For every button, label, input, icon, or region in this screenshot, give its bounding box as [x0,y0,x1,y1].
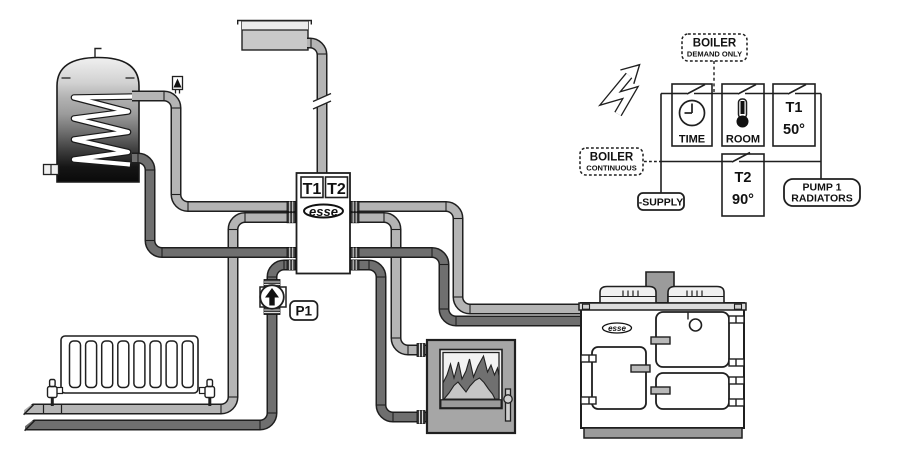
svg-text:T2: T2 [327,181,346,198]
svg-text:DEMAND ONLY: DEMAND ONLY [687,50,742,59]
svg-text:CONTINUOUS: CONTINUOUS [586,164,636,173]
svg-text:TIME: TIME [679,134,705,146]
svg-text:RADIATORS: RADIATORS [791,193,852,205]
svg-text:90°: 90° [732,192,754,208]
svg-text:50°: 50° [783,122,805,138]
svg-text:-SUPPLY: -SUPPLY [639,197,684,209]
svg-text:ROOM: ROOM [726,134,760,146]
svg-text:T2: T2 [735,170,752,186]
svg-text:T1: T1 [786,100,803,116]
svg-text:T1: T1 [303,181,322,198]
svg-text:P1: P1 [295,304,312,319]
svg-text:BOILER: BOILER [693,38,737,50]
svg-text:esse: esse [608,324,626,333]
svg-text:BOILER: BOILER [590,152,634,164]
svg-text:esse: esse [309,204,338,219]
